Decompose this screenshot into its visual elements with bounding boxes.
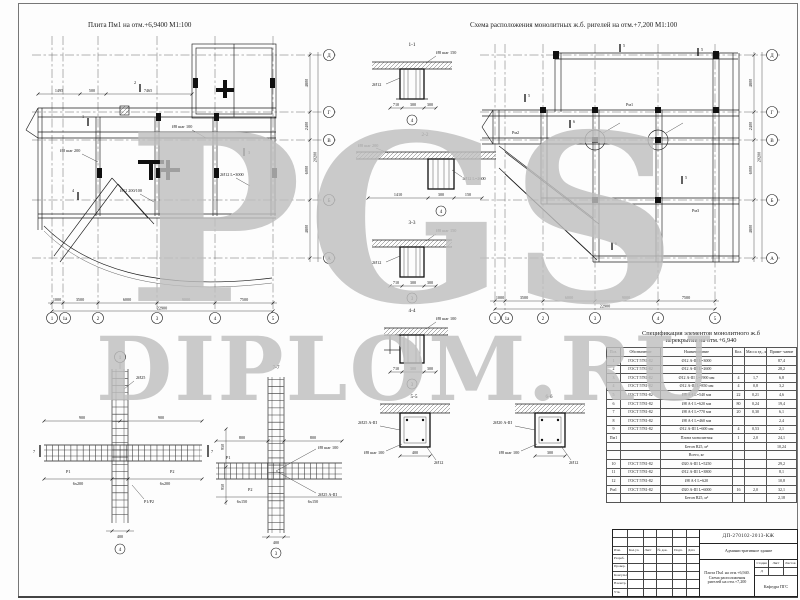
svg-text:20200: 20200 [757, 152, 762, 162]
spec-cell-note [767, 451, 797, 460]
spec-cell-pos: 12 [607, 477, 621, 486]
spec-cell-pos: 9 [607, 425, 621, 434]
spec-header-row: Поз. Обозначение Наименование Кол. Масса… [607, 348, 797, 357]
spec-cell-mass: 0,24 [745, 399, 767, 408]
right-plan-side-axis-bubbles: Д Г В Б А [767, 50, 778, 264]
table-row: Бетон В25, м³ 10,24 [607, 442, 797, 451]
right-plan-side-dimensions: 4800 2400 6000 4800 20200 [748, 52, 762, 262]
spec-cell-qty [733, 417, 745, 426]
spec-cell-qty [733, 451, 745, 460]
spec-cell-mass: 2,0 [745, 434, 767, 443]
svg-text:Г: Г [328, 111, 331, 116]
svg-text:7500: 7500 [682, 295, 690, 300]
table-row: Бетон В25, м³ 2,18 [607, 494, 797, 503]
svg-text:2-2: 2-2 [422, 132, 429, 138]
axis-bubble: 4 [115, 544, 125, 554]
svg-text:5: 5 [701, 47, 703, 52]
spec-cell-name: Ø12 А-III L=3000 [661, 356, 733, 365]
svg-text:Ø8 шаг 150: Ø8 шаг 150 [436, 50, 456, 55]
svg-text:Б: Б [771, 199, 774, 204]
svg-text:7: 7 [33, 449, 35, 454]
svg-text:Ø8 шаг 100: Ø8 шаг 100 [172, 124, 192, 129]
spec-table: Поз. Обозначение Наименование Кол. Масса… [606, 347, 797, 503]
svg-text:300: 300 [410, 102, 416, 107]
svg-text:Рм1: Рм1 [626, 102, 633, 107]
spec-cell-designation: ГОСТ 5781-82 [621, 408, 661, 417]
table-row: 1 ГОСТ 5781-82 Ø12 А-III L=3000 87,4 [607, 356, 797, 365]
spec-cell-designation: ГОСТ 5781-82 [621, 374, 661, 383]
spec-cell-designation: ГОСТ 5781-82 [621, 468, 661, 477]
axis-bubble: 4 [407, 115, 417, 125]
spec-header-cell: Масса ед., кг [745, 348, 767, 357]
svg-text:300: 300 [427, 280, 433, 285]
svg-text:Ø8 шаг 100: Ø8 шаг 100 [499, 450, 519, 455]
spec-cell-name: Ø12 А-III L=600 мм [661, 425, 733, 434]
spec-cell-mass [745, 451, 767, 460]
svg-text:2: 2 [134, 80, 136, 85]
spec-cell-pos: Рм1 [607, 485, 621, 494]
spec-header-cell: Кол. [733, 348, 745, 357]
svg-text:5-5: 5-5 [411, 394, 418, 400]
spec-cell-name: Ø8 А-I L=770 мм [661, 408, 733, 417]
svg-text:1а: 1а [63, 317, 69, 322]
axis-bubble: 3 [407, 293, 417, 303]
spec-cell-note: 10,24 [767, 442, 797, 451]
spec-cell-qty [733, 468, 745, 477]
spec-cell-mass [745, 460, 767, 469]
left-plan-drawing: 1 2 3 4 Ø8 шаг 200 Ø8 шаг 100 2Ø12 L=300… [20, 20, 356, 332]
spec-cell-mass [745, 356, 767, 365]
sections-drawings: 1-1 710 300 300 4 Ø8 шаг 150 2Ø12 2-2 [350, 20, 612, 482]
svg-text:7: 7 [211, 449, 213, 454]
spec-cell-pos: 3 [607, 374, 621, 383]
table-row: Рм1 ГОСТ 5781-82 Ø20 А-III L=6000 16 2,0… [607, 485, 797, 494]
svg-text:Ø12 200/100: Ø12 200/100 [120, 188, 142, 193]
svg-text:3500: 3500 [76, 297, 84, 302]
svg-text:6x200: 6x200 [160, 481, 170, 486]
svg-text:400: 400 [273, 540, 279, 545]
spec-cell-designation [621, 494, 661, 503]
svg-text:300: 300 [427, 366, 433, 371]
project-object-name: Административное здание [700, 544, 797, 560]
spec-cell-qty: 4 [733, 425, 745, 434]
svg-text:Д: Д [327, 54, 331, 59]
stage-header-row: Стадия Лист Листов [755, 560, 797, 568]
specification-table: Спецификация элементов монолитного ж.б п… [606, 330, 796, 503]
left-plan-bottom-dimensions: 1000 3500 6000 9000 7500 22900 [48, 297, 277, 313]
axis-bubble: 3 [152, 313, 163, 324]
spec-cell-name: Ø8 А-I L=540 мм [661, 391, 733, 400]
svg-text:Р1: Р1 [66, 469, 70, 474]
spec-cell-qty [733, 494, 745, 503]
axis-bubble: 1а [60, 313, 71, 324]
section-1-1: 1-1 710 300 300 4 Ø8 шаг 150 2Ø12 [372, 42, 456, 125]
spec-cell-pos: 6 [607, 399, 621, 408]
spec-cell-note: 4,6 [767, 391, 797, 400]
svg-text:1495: 1495 [55, 88, 63, 93]
svg-text:800: 800 [239, 435, 245, 440]
spec-cell-note: 29,2 [767, 460, 797, 469]
svg-text:А: А [327, 257, 331, 262]
spec-header-cell: Наименование [661, 348, 733, 357]
spec-title-line1: Спецификация элементов монолитного ж.б [606, 330, 796, 337]
spec-cell-qty: 22 [733, 391, 745, 400]
axis-bubble: В [324, 135, 335, 146]
stage-value-row: Д [755, 568, 797, 576]
spec-cell-note: 3,2 [767, 382, 797, 391]
document-code: ДП-270102-2013-КЖ [700, 530, 797, 544]
stamp-header-row: Изм.Кол.уч. Лист№ док. Подп.Дата [613, 547, 699, 555]
svg-text:22900: 22900 [157, 306, 167, 311]
svg-text:5: 5 [623, 43, 625, 48]
spec-cell-note: 2,4 [767, 417, 797, 426]
svg-text:Д: Д [770, 54, 774, 59]
spec-cell-mass: 2,0 [745, 485, 767, 494]
spec-cell-qty: 1 [733, 434, 745, 443]
spec-cell-pos: 10 [607, 460, 621, 469]
svg-text:900: 900 [158, 415, 164, 420]
axis-bubble: 4 [210, 313, 221, 324]
axis-bubble: Б [767, 195, 778, 206]
svg-text:1-1: 1-1 [409, 42, 416, 48]
svg-text:4800: 4800 [748, 79, 753, 87]
spec-cell-mass: 0,53 [745, 425, 767, 434]
svg-text:3-3: 3-3 [409, 220, 416, 226]
spec-cell-name: Ø12 А-III L=3800 [661, 468, 733, 477]
svg-text:Ø8 шаг 100: Ø8 шаг 100 [364, 450, 384, 455]
svg-text:2Ø12: 2Ø12 [434, 460, 443, 465]
svg-text:800: 800 [310, 435, 316, 440]
svg-text:300: 300 [410, 280, 416, 285]
axis-bubble: Д [324, 50, 335, 61]
left-plan-grid-lines [32, 36, 336, 310]
svg-text:6: 6 [615, 241, 617, 246]
svg-text:Г: Г [771, 111, 774, 116]
spec-cell-mass [745, 477, 767, 486]
svg-text:710: 710 [393, 366, 399, 371]
spec-cell-name: Ø12 А-III L=1900 мм [661, 374, 733, 383]
svg-text:5: 5 [685, 175, 687, 180]
sheets-total-value [784, 568, 797, 575]
detail-section-7-7: 7-7 Ø8 шаг 100 2Ø25 А-III 800 800 6x150 … [215, 365, 344, 558]
spec-cell-pos: 11 [607, 468, 621, 477]
spec-cell-designation [621, 451, 661, 460]
spec-cell-note: 28,2 [767, 365, 797, 374]
spec-cell-pos [607, 494, 621, 503]
svg-text:6x150: 6x150 [308, 499, 318, 504]
table-row: 10 ГОСТ 5781-82 Ø20 А-III L=5250 29,2 [607, 460, 797, 469]
axis-bubble: Г [324, 107, 335, 118]
svg-text:300: 300 [427, 102, 433, 107]
spec-cell-pos [607, 442, 621, 451]
svg-text:7465: 7465 [144, 88, 152, 93]
axis-bubble: Б [324, 195, 335, 206]
title-block-left-grid: Изм.Кол.уч. Лист№ док. Подп.Дата Разраб.… [613, 530, 700, 596]
table-row: 8 ГОСТ 5781-82 Ø8 А-I L=460 мм 2,4 [607, 417, 797, 426]
spec-cell-qty [733, 460, 745, 469]
left-plan-bottom-axis-bubbles: 1 1а 2 3 4 5 [47, 313, 279, 324]
spec-cell-qty [733, 442, 745, 451]
spec-cell-name: Ø20 А-III L=6000 [661, 485, 733, 494]
axis-bubble: 5 [710, 313, 721, 324]
table-row: Пм1 Плита монолитная 1 2,0 24,1 [607, 434, 797, 443]
spec-cell-pos: 1 [607, 356, 621, 365]
axis-bubble: Д [767, 50, 778, 61]
svg-text:4800: 4800 [304, 225, 309, 233]
svg-text:Ø8 шаг 100: Ø8 шаг 100 [436, 316, 456, 321]
spec-cell-pos: 2 [607, 365, 621, 374]
svg-text:4800: 4800 [748, 225, 753, 233]
svg-text:2400: 2400 [304, 122, 309, 130]
svg-text:1000: 1000 [53, 297, 61, 302]
table-row: 4 ГОСТ 5781-82 Ø12 А-III L=850 мм 4 0,8 … [607, 382, 797, 391]
axis-bubble: 4 [653, 313, 664, 324]
sheet-no-value [769, 568, 783, 575]
spec-cell-qty [733, 477, 745, 486]
svg-text:Р2: Р2 [170, 469, 174, 474]
svg-text:2Ø25 А-III: 2Ø25 А-III [318, 492, 338, 497]
spec-cell-name: Всего, кг [661, 451, 733, 460]
spec-cell-qty: 4 [733, 374, 745, 383]
section-2-2: 2-2 1410 300 150 4 Ø8 шаг 200 1Ø12 L=260… [356, 132, 496, 216]
spec-cell-designation: ГОСТ 5781-82 [621, 356, 661, 365]
svg-text:Р1/Р2: Р1/Р2 [144, 499, 154, 504]
svg-text:Ø8 шаг 200: Ø8 шаг 200 [358, 143, 378, 148]
drawing-sheet: Плита Пм1 на отм.+6,9400 М1:100 Схема ра… [0, 0, 800, 600]
spec-cell-name: Бетон В25, м³ [661, 442, 733, 451]
svg-text:7-7: 7-7 [273, 365, 280, 371]
section-3-3: 3-3 710 300 300 3 Ø8 шаг 150 2Ø12 [372, 220, 456, 303]
svg-text:2Ø20 А-III: 2Ø20 А-III [493, 420, 513, 425]
svg-text:Ø8 шаг 100: Ø8 шаг 100 [318, 445, 338, 450]
svg-text:6x200: 6x200 [73, 481, 83, 486]
table-row: 11 ГОСТ 5781-82 Ø12 А-III L=3800 8,1 [607, 468, 797, 477]
svg-text:3: 3 [248, 150, 250, 155]
axis-bubble: Г [767, 107, 778, 118]
svg-text:Р1: Р1 [226, 455, 230, 460]
svg-text:1410: 1410 [394, 192, 402, 197]
spec-cell-mass [745, 494, 767, 503]
svg-text:1: 1 [82, 114, 84, 119]
svg-text:2Ø12 L=3000: 2Ø12 L=3000 [220, 172, 244, 177]
spec-cell-mass [745, 442, 767, 451]
svg-text:2Ø25 А-III: 2Ø25 А-III [358, 420, 378, 425]
svg-text:А: А [770, 257, 774, 262]
svg-text:4-4: 4-4 [409, 308, 416, 314]
spec-cell-designation: ГОСТ 5781-82 [621, 460, 661, 469]
spec-cell-mass [745, 468, 767, 477]
axis-bubble: 2 [93, 313, 104, 324]
svg-text:9000: 9000 [182, 297, 190, 302]
svg-text:950: 950 [220, 444, 225, 450]
svg-text:2Ø12: 2Ø12 [372, 82, 381, 87]
svg-text:2Ø12: 2Ø12 [569, 460, 578, 465]
spec-cell-designation: ГОСТ 5781-82 [621, 399, 661, 408]
spec-header-cell: Обозначение [621, 348, 661, 357]
table-row: 3 ГОСТ 5781-82 Ø12 А-III L=1900 мм 4 1,7… [607, 374, 797, 383]
section-4-4: 4-4 710 300 300 3 Ø8 шаг 100 [384, 308, 456, 389]
axis-bubble: 1 [115, 352, 126, 363]
spec-cell-qty [733, 356, 745, 365]
spec-cell-designation: ГОСТ 5781-82 [621, 391, 661, 400]
spec-cell-designation: ГОСТ 5781-82 [621, 382, 661, 391]
spec-cell-mass [745, 365, 767, 374]
spec-cell-pos [607, 451, 621, 460]
spec-cell-mass: 0,30 [745, 408, 767, 417]
left-plan-top-dimensions: 1495 500 7465 [37, 88, 194, 96]
spec-cell-designation: ГОСТ 5781-82 [621, 365, 661, 374]
table-row: 5 ГОСТ 5781-82 Ø8 А-I L=540 мм 22 0,21 4… [607, 391, 797, 400]
svg-text:Ø8 шаг 150: Ø8 шаг 150 [436, 228, 456, 233]
spec-cell-mass: 0,21 [745, 391, 767, 400]
axis-bubble: 4 [436, 206, 446, 216]
svg-text:Рм3: Рм3 [692, 208, 699, 213]
detail-node-1: 1 900 900 6x200 6x200 950 950 40 [33, 352, 228, 555]
svg-text:4: 4 [72, 188, 75, 193]
svg-text:6x150: 6x150 [237, 499, 247, 504]
title-block: Изм.Кол.уч. Лист№ док. Подп.Дата Разраб.… [612, 529, 798, 597]
table-row: 9 ГОСТ 5781-82 Ø12 А-III L=600 мм 4 0,53… [607, 425, 797, 434]
svg-text:710: 710 [393, 280, 399, 285]
spec-cell-note: 6,8 [767, 374, 797, 383]
spec-cell-mass: 0,8 [745, 382, 767, 391]
spec-cell-name: Ø8 А-I L=620 мм [661, 399, 733, 408]
sheet-title: Плита Пм1 на отм.+6,940. Схема расположе… [700, 560, 755, 596]
svg-text:Б: Б [328, 199, 331, 204]
svg-text:150: 150 [465, 192, 471, 197]
section-5-5: 5-5 400 2Ø25 А-III Ø8 шаг 100 2Ø12 [358, 394, 450, 465]
stage-value: Д [755, 568, 769, 575]
spec-cell-name: Ø12 А-III L=850 мм [661, 382, 733, 391]
axis-bubble: 3 [271, 548, 281, 558]
spec-cell-designation [621, 442, 661, 451]
axis-bubble: А [767, 253, 778, 264]
table-row: 6 ГОСТ 5781-82 Ø8 А-I L=620 мм 80 0,24 1… [607, 399, 797, 408]
spec-cell-note: 19,4 [767, 399, 797, 408]
spec-cell-qty: 80 [733, 399, 745, 408]
left-plan-side-axis-bubbles: Д Г В Б А [324, 50, 335, 264]
spec-cell-pos: 4 [607, 382, 621, 391]
spec-cell-note: 32,1 [767, 485, 797, 494]
spec-header-cell: Поз. [607, 348, 621, 357]
spec-header-cell: Приме- чание [767, 348, 797, 357]
svg-text:2Ø25: 2Ø25 [136, 375, 145, 380]
svg-text:6000: 6000 [304, 166, 309, 174]
spec-cell-pos: 8 [607, 417, 621, 426]
spec-table-body: 1 ГОСТ 5781-82 Ø12 А-III L=3000 87,4 2 Г… [607, 356, 797, 502]
section-6-6: 6-6 300 2Ø20 А-III Ø8 шаг 100 2Ø12 [493, 394, 585, 465]
table-row: Всего, кг [607, 451, 797, 460]
svg-text:400: 400 [412, 450, 418, 455]
spec-cell-name: Ø12 А-III L=2600 [661, 365, 733, 374]
spec-cell-mass: 1,7 [745, 374, 767, 383]
spec-cell-designation: ГОСТ 5781-82 [621, 425, 661, 434]
spec-cell-name: Ø8 А-I L=620 [661, 477, 733, 486]
spec-cell-pos: 5 [607, 391, 621, 400]
svg-text:6000: 6000 [748, 166, 753, 174]
svg-text:300: 300 [438, 192, 444, 197]
spec-cell-designation: ГОСТ 5781-82 [621, 485, 661, 494]
svg-text:950: 950 [220, 484, 225, 490]
table-row: 7 ГОСТ 5781-82 Ø8 А-I L=770 мм 20 0,30 6… [607, 408, 797, 417]
spec-cell-qty [733, 365, 745, 374]
svg-text:2400: 2400 [748, 122, 753, 130]
spec-cell-note: 2,1 [767, 425, 797, 434]
svg-text:9000: 9000 [622, 295, 630, 300]
svg-text:400: 400 [117, 534, 123, 539]
spec-cell-qty: 20 [733, 408, 745, 417]
spec-cell-note: 8,1 [767, 468, 797, 477]
spec-cell-qty: 16 [733, 485, 745, 494]
svg-text:7500: 7500 [240, 297, 248, 302]
spec-cell-pos: Пм1 [607, 434, 621, 443]
svg-text:1Ø12 L=2600: 1Ø12 L=2600 [462, 176, 486, 181]
axis-bubble: В [767, 135, 778, 146]
spec-cell-note: 10,8 [767, 477, 797, 486]
axis-bubble: 1 [47, 313, 58, 324]
left-plan-columns [97, 78, 277, 180]
organization-name: Кафедра ПГС [755, 576, 797, 596]
spec-cell-note: 2,18 [767, 494, 797, 503]
svg-text:900: 900 [79, 415, 85, 420]
spec-cell-designation: ГОСТ 5781-82 [621, 417, 661, 426]
svg-text:300: 300 [410, 366, 416, 371]
spec-cell-note: 6,1 [767, 408, 797, 417]
svg-text:2Ø12: 2Ø12 [372, 260, 381, 265]
spec-cell-pos: 7 [607, 408, 621, 417]
spec-cell-name: Ø20 А-III L=5250 [661, 460, 733, 469]
left-plan-side-dimensions: 4800 2400 6000 4800 20200 [304, 52, 318, 262]
table-row: 2 ГОСТ 5781-82 Ø12 А-III L=2600 28,2 [607, 365, 797, 374]
spec-cell-mass [745, 417, 767, 426]
svg-text:Р2: Р2 [248, 487, 252, 492]
svg-text:20200: 20200 [313, 152, 318, 162]
svg-text:Ø8 шаг 200: Ø8 шаг 200 [60, 148, 80, 153]
spec-cell-note: 24,1 [767, 434, 797, 443]
spec-cell-name: Плита монолитная [661, 434, 733, 443]
svg-text:500: 500 [89, 88, 95, 93]
axis-bubble: 5 [268, 313, 279, 324]
spec-title-line2: перекрытия на отм.+6,940 [606, 337, 796, 344]
svg-text:4800: 4800 [304, 79, 309, 87]
spec-cell-qty: 4 [733, 382, 745, 391]
spec-cell-note: 87,4 [767, 356, 797, 365]
spec-cell-name: Бетон В25, м³ [661, 494, 733, 503]
spec-cell-name: Ø8 А-I L=460 мм [661, 417, 733, 426]
svg-text:6-6: 6-6 [546, 394, 553, 400]
svg-text:710: 710 [393, 102, 399, 107]
joint-details-drawings: 1 900 900 6x200 6x200 950 950 40 [20, 345, 356, 559]
spec-cell-designation: ГОСТ 5781-82 [621, 477, 661, 486]
svg-text:300: 300 [547, 450, 553, 455]
table-row: 12 ГОСТ 5781-82 Ø8 А-I L=620 10,8 [607, 477, 797, 486]
svg-text:6000: 6000 [123, 297, 131, 302]
spec-cell-designation [621, 434, 661, 443]
axis-bubble: 3 [407, 379, 417, 389]
axis-bubble: А [324, 253, 335, 264]
